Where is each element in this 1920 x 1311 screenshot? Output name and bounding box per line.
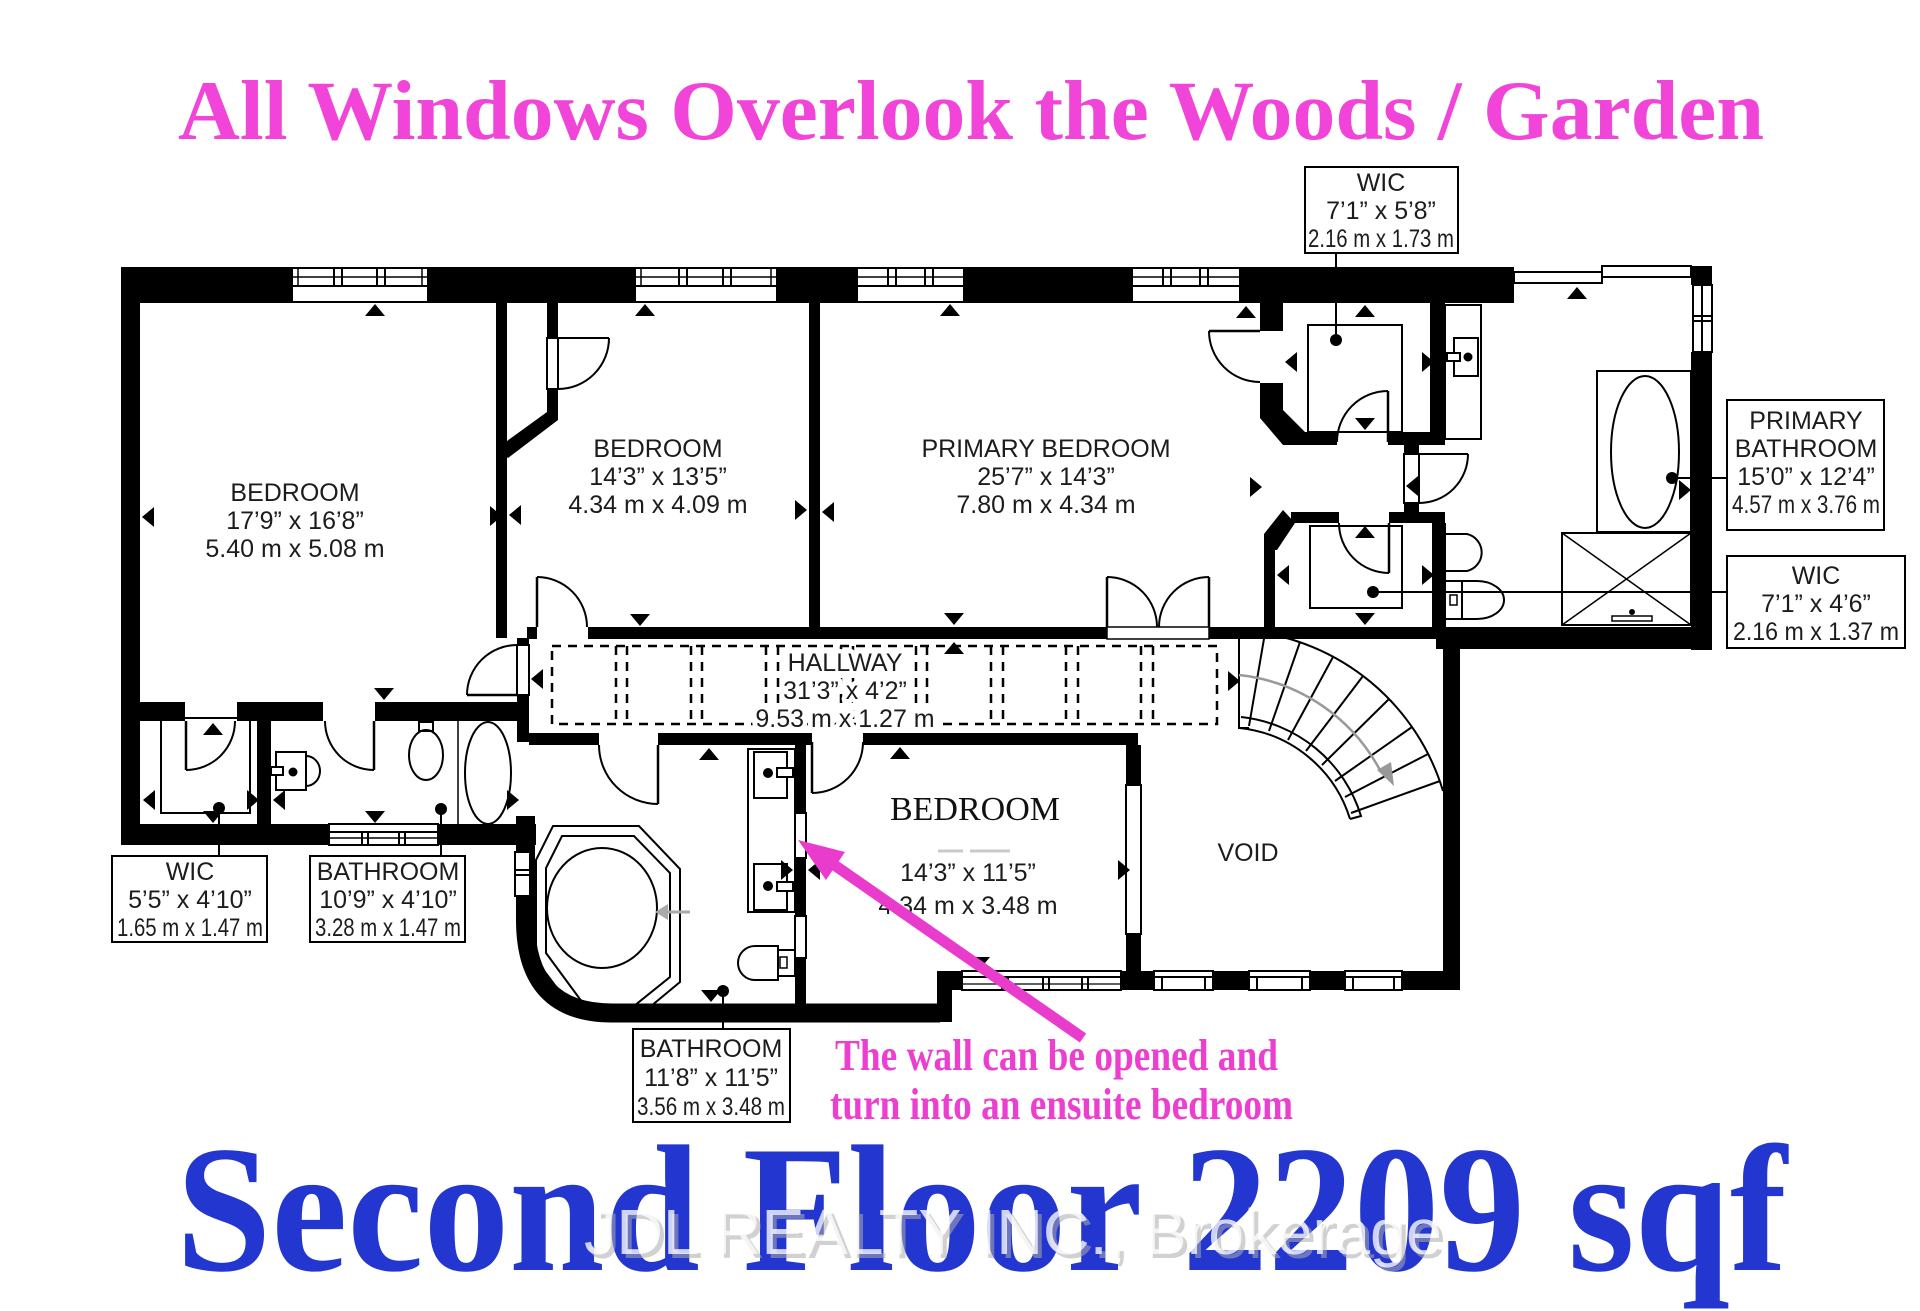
- svg-text:BATHROOM: BATHROOM: [640, 1035, 783, 1063]
- svg-text:7’1” x 5’8”: 7’1” x 5’8”: [1326, 197, 1436, 225]
- svg-text:HALLWAY: HALLWAY: [788, 649, 903, 677]
- svg-text:2.16 m x 1.37 m: 2.16 m x 1.37 m: [1733, 618, 1899, 646]
- svg-text:31’3” x 4’2”: 31’3” x 4’2”: [783, 677, 907, 705]
- svg-text:BEDROOM: BEDROOM: [890, 791, 1060, 828]
- svg-text:4.34 m x 4.09 m: 4.34 m x 4.09 m: [568, 491, 747, 519]
- svg-text:11’8” x 11’5”: 11’8” x 11’5”: [644, 1064, 778, 1092]
- svg-text:7.80 m x 4.34 m: 7.80 m x 4.34 m: [956, 491, 1135, 519]
- svg-text:5’5” x 4’10”: 5’5” x 4’10”: [128, 886, 252, 914]
- svg-text:WIC: WIC: [166, 858, 215, 886]
- svg-text:BEDROOM: BEDROOM: [230, 479, 359, 507]
- svg-text:9.53 m x 1.27 m: 9.53 m x 1.27 m: [755, 705, 934, 733]
- svg-text:7’1” x 4’6”: 7’1” x 4’6”: [1761, 590, 1871, 618]
- svg-text:14’3” x 11’5”: 14’3” x 11’5”: [900, 859, 1036, 887]
- svg-text:25’7” x 14’3”: 25’7” x 14’3”: [977, 463, 1115, 491]
- svg-text:14’3” x 13’5”: 14’3” x 13’5”: [589, 463, 727, 491]
- svg-text:BEDROOM: BEDROOM: [593, 435, 722, 463]
- svg-text:15’0” x 12’4”: 15’0” x 12’4”: [1737, 463, 1875, 491]
- svg-text:BATHROOM: BATHROOM: [317, 858, 460, 886]
- svg-text:10’9” x 4’10”: 10’9” x 4’10”: [319, 886, 457, 914]
- svg-text:WIC: WIC: [1357, 169, 1406, 197]
- svg-text:2.16 m x 1.73 m: 2.16 m x 1.73 m: [1308, 225, 1454, 253]
- svg-text:BATHROOM: BATHROOM: [1735, 435, 1878, 463]
- svg-text:3.28 m x 1.47 m: 3.28 m x 1.47 m: [315, 914, 461, 942]
- svg-text:17’9” x 16’8”: 17’9” x 16’8”: [226, 507, 364, 535]
- svg-text:All Windows Overlook the Woods: All Windows Overlook the Woods / Garden: [178, 64, 1764, 158]
- svg-text:PRIMARY BEDROOM: PRIMARY BEDROOM: [921, 435, 1170, 463]
- svg-text:JDL REALTY INC., Brokerage: JDL REALTY INC., Brokerage: [584, 1196, 1442, 1268]
- svg-text:5.40 m x 5.08 m: 5.40 m x 5.08 m: [205, 535, 384, 563]
- svg-text:1.65 m x 1.47 m: 1.65 m x 1.47 m: [117, 914, 263, 942]
- svg-text:VOID: VOID: [1217, 839, 1278, 867]
- svg-text:4.57 m x 3.76 m: 4.57 m x 3.76 m: [1732, 491, 1880, 519]
- svg-text:The wall can be opened and: The wall can be opened and: [835, 1031, 1278, 1080]
- svg-text:WIC: WIC: [1792, 562, 1841, 590]
- svg-text:PRIMARY: PRIMARY: [1749, 407, 1863, 435]
